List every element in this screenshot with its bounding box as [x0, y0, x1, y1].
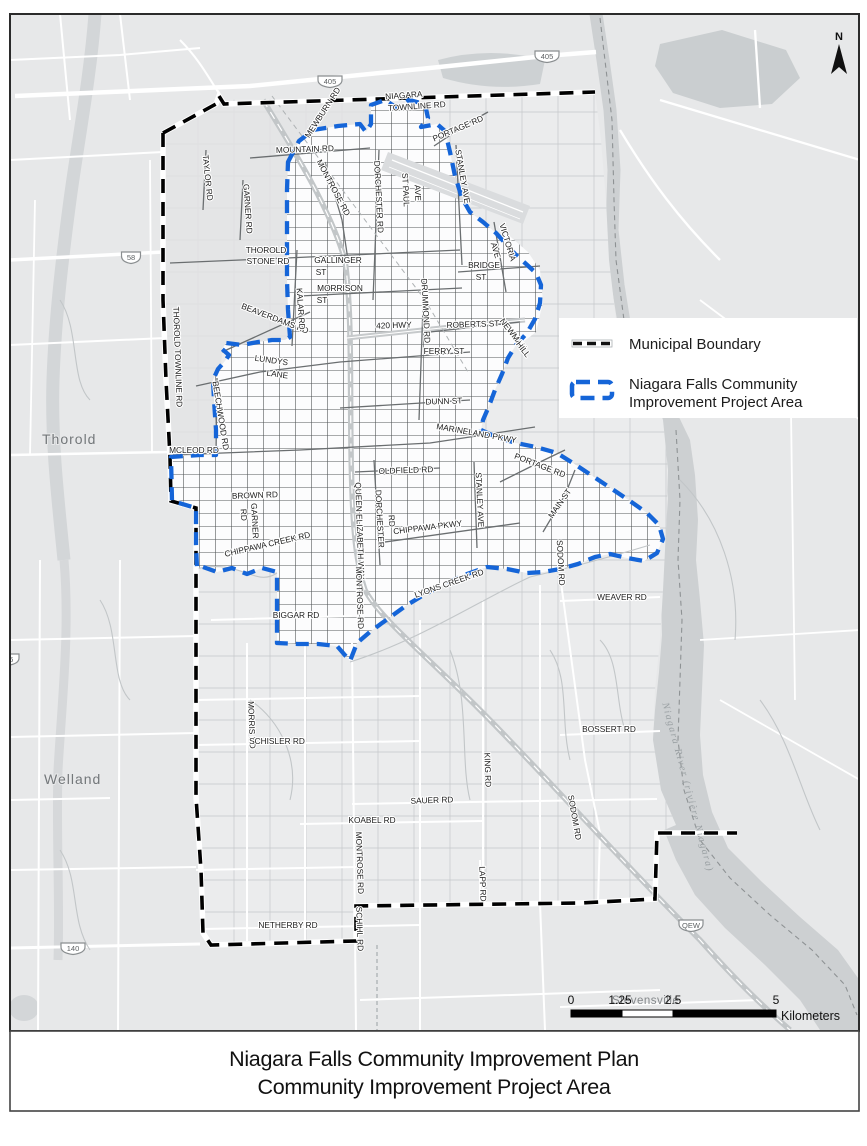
map-page: Niagara River (rivière Niagara) ThoroldW… — [0, 0, 867, 1146]
map-title-line1: Niagara Falls Community Improvement Plan — [229, 1047, 639, 1071]
road-label: AVE — [413, 185, 424, 202]
legend-label-cip-1: Niagara Falls Community — [629, 376, 798, 393]
road-label: BOSSERT RD — [582, 724, 636, 734]
scale-unit: Kilometers — [781, 1009, 840, 1023]
scale-tick-0: 0 — [568, 993, 575, 1007]
scale-tick-2: 2.5 — [665, 993, 682, 1007]
shield-label: 140 — [67, 944, 80, 953]
scale-seg-3 — [673, 1010, 776, 1017]
road-label: GARNER — [249, 503, 261, 539]
road-label: GALLINGER — [314, 255, 362, 265]
road-label: BIGGAR RD — [273, 610, 320, 620]
road-label: KING RD — [482, 752, 493, 787]
road-label: ST — [316, 267, 327, 277]
legend-label-cip-2: Improvement Project Area — [629, 394, 803, 411]
highway-shield: 58 — [122, 252, 141, 264]
map-canvas: Niagara River (rivière Niagara) ThoroldW… — [0, 0, 867, 1146]
road-label: SAUER RD — [410, 794, 453, 805]
road-label: ROBERTS ST — [446, 318, 499, 330]
road-label: NETHERBY RD — [258, 920, 317, 930]
road-label: THOROLD — [246, 245, 287, 255]
road-label: 420 HWY — [376, 319, 412, 330]
road-label: SCHIHL RD — [354, 907, 366, 952]
road-label: KOABEL RD — [348, 815, 395, 825]
road-label: ST — [476, 272, 487, 282]
highway-shield: 140 — [61, 943, 85, 955]
shield-label: 405 — [541, 52, 554, 61]
highway-shield: 405 — [535, 51, 559, 63]
title-box: Niagara Falls Community Improvement Plan… — [10, 1031, 859, 1111]
road-label: MORRISON — [317, 283, 363, 293]
road-label: BROWN RD — [232, 489, 278, 501]
scale-seg-1 — [571, 1010, 622, 1017]
road-label: RD — [239, 509, 250, 521]
road-label: MOUNTAIN RD — [276, 143, 334, 155]
road-label: LAPP RD — [477, 866, 488, 902]
road-label: SCHISLER RD — [249, 736, 305, 746]
shield-label: 58 — [127, 253, 135, 262]
city-label: Thorold — [42, 431, 96, 447]
scale-seg-2 — [622, 1010, 673, 1017]
legend-label-municipal: Municipal Boundary — [629, 336, 761, 353]
road-label: WEAVER RD — [597, 592, 647, 602]
road-label: MCLEOD RD — [169, 445, 219, 455]
map-area: Niagara River (rivière Niagara) ThoroldW… — [0, 14, 860, 1031]
road-label: STONE RD — [247, 256, 290, 266]
scale-tick-1: 1.25 — [608, 993, 632, 1007]
road-label: BRIDGE — [468, 260, 500, 270]
road-label: FERRY ST — [424, 346, 465, 356]
legend: Municipal Boundary Niagara Falls Communi… — [559, 318, 857, 418]
highway-shield: QEW — [679, 920, 703, 932]
road-label: OLDFIELD RD — [378, 464, 433, 476]
shield-label: 406 — [1, 655, 14, 664]
map-title-line2: Community Improvement Project Area — [257, 1075, 610, 1099]
road-label: ST PAUL — [400, 173, 412, 208]
highway-shield: 405 — [318, 76, 342, 88]
shield-label: QEW — [682, 921, 701, 930]
road-label: DUNN ST — [425, 395, 462, 406]
north-label: N — [835, 31, 843, 43]
shield-label: 405 — [324, 77, 337, 86]
scale-tick-3: 5 — [773, 993, 780, 1007]
city-label: Welland — [44, 771, 101, 787]
title-box-rect — [10, 1031, 859, 1111]
road-label: ST — [317, 295, 328, 305]
